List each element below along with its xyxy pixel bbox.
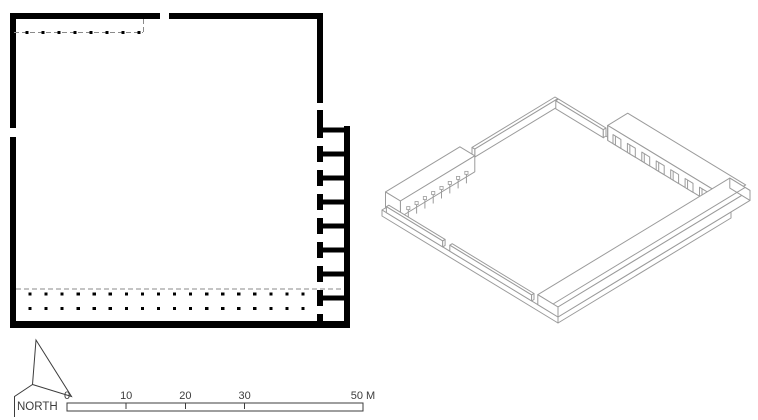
- east-wall-segment: [317, 218, 323, 234]
- colonnade-column-dot: [141, 307, 144, 310]
- colonnade-column-dot: [253, 292, 256, 295]
- colonnade-column-dot: [269, 292, 272, 295]
- north-wall: [169, 13, 322, 19]
- iso-portico-post-cap: [457, 176, 460, 179]
- west-wall: [10, 13, 16, 128]
- colonnade-column-dot: [77, 292, 80, 295]
- colonnade-column-dot: [221, 307, 224, 310]
- colonnade-column-dot: [301, 307, 304, 310]
- iso-portico-post-cap: [465, 171, 468, 174]
- colonnade-column-dot: [189, 307, 192, 310]
- north-label: NORTH: [17, 401, 58, 413]
- colonnade-column-dot: [141, 292, 144, 295]
- colonnade-column-dot: [125, 292, 128, 295]
- portico-column-dot: [41, 31, 44, 34]
- colonnade-column-dot: [189, 292, 192, 295]
- scale-bar-body: [67, 403, 363, 411]
- north-arrow-head: [33, 340, 72, 397]
- portico-column-dot: [57, 31, 60, 34]
- colonnade-column-dot: [301, 292, 304, 295]
- colonnade-column-dot: [157, 307, 160, 310]
- colonnade-column-dot: [221, 292, 224, 295]
- portico-column-dot: [121, 31, 124, 34]
- colonnade-column-dot: [285, 292, 288, 295]
- colonnade-column-dot: [125, 307, 128, 310]
- portico-column-dot: [89, 31, 92, 34]
- iso-east-wall: [603, 128, 606, 138]
- east-wall: [317, 13, 323, 103]
- iso-portico-post-cap: [415, 202, 418, 205]
- colonnade-column-dot: [93, 307, 96, 310]
- east-wall-segment: [317, 110, 323, 138]
- colonnade-column-dot: [285, 307, 288, 310]
- colonnade-column-dot: [44, 307, 47, 310]
- colonnade-column-dot: [173, 307, 176, 310]
- iso-west-wall: [532, 294, 534, 301]
- colonnade-column-dot: [269, 307, 272, 310]
- scale-bar: 010203050 M: [64, 390, 375, 411]
- drawing-sheet: NORTH 010203050 M: [0, 0, 758, 420]
- colonnade-column-dot: [93, 292, 96, 295]
- portico-column-dot: [73, 31, 76, 34]
- south-wall: [10, 321, 350, 328]
- colonnade-column-dot: [61, 292, 64, 295]
- colonnade-column-dot: [28, 292, 31, 295]
- colonnade-column-dot: [28, 307, 31, 310]
- colonnade-column-dot: [109, 307, 112, 310]
- portico-column-dot: [137, 31, 140, 34]
- iso-portico-post-cap: [448, 181, 451, 184]
- colonnade-column-dot: [109, 292, 112, 295]
- colonnade-column-dot: [77, 307, 80, 310]
- east-wall-segment: [317, 194, 323, 210]
- scale-label: 0: [64, 390, 70, 402]
- iso-portico-post-cap: [423, 197, 426, 200]
- portico-column-dot: [25, 31, 28, 34]
- colonnade-column-dot: [173, 292, 176, 295]
- iso-west-wall: [443, 239, 445, 247]
- scale-label: 50 M: [351, 390, 375, 402]
- east-wall-segment: [317, 266, 323, 282]
- colonnade-column-dot: [61, 307, 64, 310]
- colonnade-column-dot: [253, 307, 256, 310]
- scale-label: 20: [179, 390, 191, 402]
- iso-portico-post-cap: [440, 186, 443, 189]
- colonnade-column-dot: [44, 292, 47, 295]
- east-wall-segment: [317, 170, 323, 186]
- scale-label: 30: [238, 390, 250, 402]
- iso-portico-post-cap: [432, 192, 435, 195]
- colonnade-column-dot: [237, 292, 240, 295]
- floor-plan: [10, 13, 350, 328]
- east-wall-segment: [317, 146, 323, 162]
- colonnade-column-dot: [237, 307, 240, 310]
- north-wall: [10, 13, 160, 19]
- colonnade-column-dot: [205, 292, 208, 295]
- east-wall-segment: [317, 290, 323, 306]
- architectural-drawing: NORTH 010203050 M: [0, 0, 758, 420]
- east-wall-segment: [317, 314, 323, 321]
- colonnade-column-dot: [205, 307, 208, 310]
- west-wall: [10, 137, 16, 328]
- scale-label: 10: [120, 390, 132, 402]
- isometric-view: [382, 97, 750, 323]
- east-wall-segment: [317, 242, 323, 258]
- iso-portico-post-cap: [407, 207, 410, 210]
- colonnade-column-dot: [157, 292, 160, 295]
- portico-column-dot: [105, 31, 108, 34]
- north-arrow: NORTH: [15, 340, 72, 417]
